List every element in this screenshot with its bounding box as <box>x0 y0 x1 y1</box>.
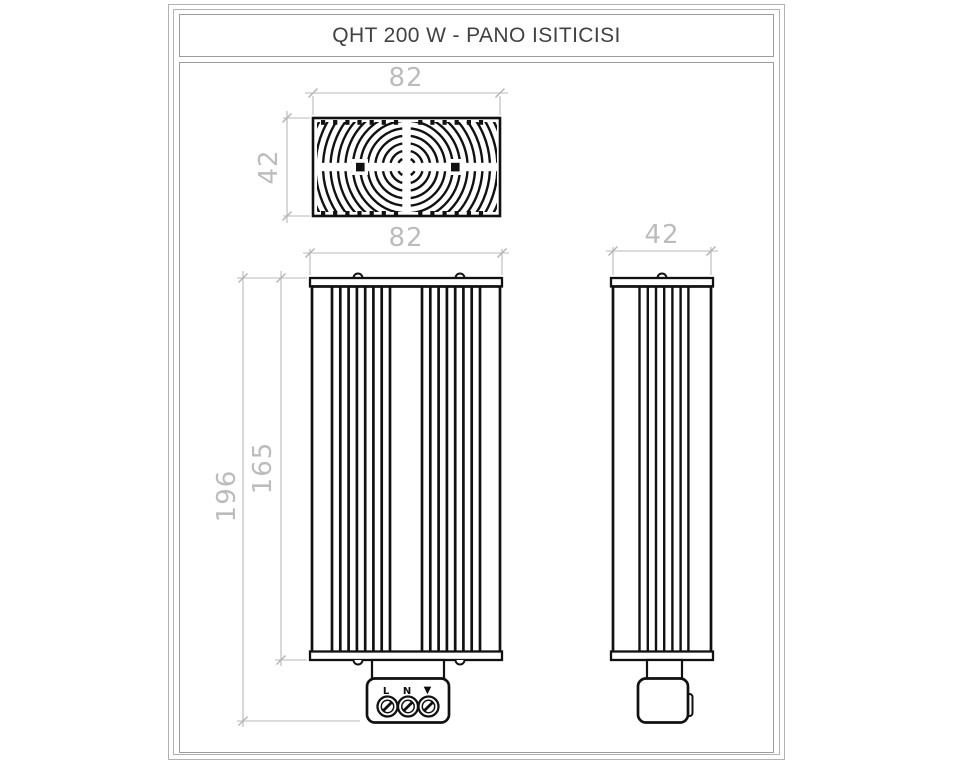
side-terminal-neck <box>647 660 682 679</box>
grille-slot-end <box>321 211 325 216</box>
grille-slot-end <box>333 211 337 216</box>
grille-slot-end <box>430 211 434 216</box>
grille-slot-end <box>357 120 361 125</box>
dimension-top-depth: 42 <box>254 111 310 223</box>
grille-slot-end <box>394 211 398 216</box>
grille-slot-end <box>479 211 483 216</box>
mount-bump <box>456 660 465 665</box>
grille-slot-end <box>370 120 374 125</box>
front-view: L N ▼ <box>310 274 502 723</box>
side-view <box>611 274 713 723</box>
grille-slot-end <box>321 120 325 125</box>
grille-slot-end <box>357 211 361 216</box>
dimension-front-width: 82 <box>303 223 509 275</box>
grille-slot-end <box>345 211 349 216</box>
dim-label-front-total-height: 196 <box>212 470 242 523</box>
front-bottom-cap <box>310 652 502 661</box>
grille-slot-end <box>443 120 447 125</box>
screw-left-icon <box>356 163 365 172</box>
side-terminal-block <box>638 679 688 723</box>
dimension-top-width: 82 <box>305 63 508 115</box>
dimension-front-body-height: 165 <box>248 271 307 666</box>
grille-slot-end <box>333 120 337 125</box>
side-bottom-cap <box>611 652 713 661</box>
grille-slot-end <box>479 120 483 125</box>
ground-icon: ▼ <box>424 685 432 696</box>
terminal-neck <box>372 660 444 679</box>
dimension-side-depth: 42 <box>606 220 718 275</box>
terminal-screws <box>378 697 439 717</box>
grille-slot-end <box>443 211 447 216</box>
grille-slot-end <box>455 211 459 216</box>
drawing-sheet: { "title": "QHT 200 W - PANO ISITICISI",… <box>0 0 960 768</box>
terminal-label-neutral: N <box>403 686 411 697</box>
grille-slot-end <box>345 120 349 125</box>
grille-slot-end <box>467 211 471 216</box>
dim-label-front-width: 82 <box>388 223 423 253</box>
screw-right-icon <box>451 163 460 172</box>
grille-slot-end <box>455 120 459 125</box>
grille-slot-end <box>418 120 422 125</box>
grille-slot-end <box>418 211 422 216</box>
side-fins <box>640 288 689 651</box>
technical-drawing: L N ▼ 82 42 82 165 196 42 <box>0 0 960 768</box>
dim-label-top-width: 82 <box>388 63 423 93</box>
dim-label-front-body-height: 165 <box>248 442 278 495</box>
mount-bump <box>354 660 363 665</box>
grille-slot-end <box>370 211 374 216</box>
grille-slot-end <box>430 120 434 125</box>
side-body <box>613 287 711 653</box>
top-view-outline <box>313 118 500 216</box>
grille-slot-end <box>394 120 398 125</box>
terminal-label-line: L <box>383 686 390 697</box>
grille-slot-end <box>382 120 386 125</box>
dim-label-top-depth: 42 <box>254 149 284 184</box>
dim-label-side-depth: 42 <box>644 220 679 250</box>
grille-slot-end <box>467 120 471 125</box>
grille-slot-end <box>382 211 386 216</box>
